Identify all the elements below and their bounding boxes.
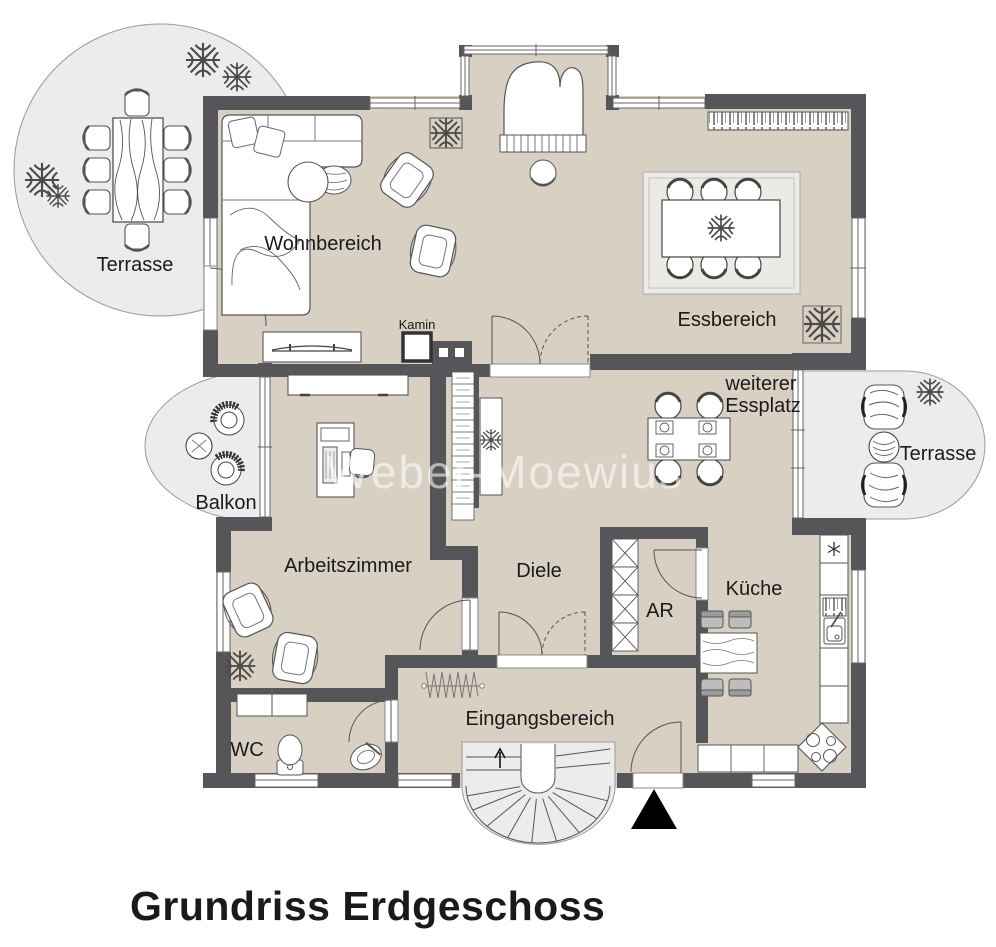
balcony-table [186,433,212,459]
drainboard [823,598,846,616]
dining-label: Essbereich [678,309,777,331]
terrace-left-label: Terrasse [97,254,174,276]
kitchen-counter-right [820,535,848,723]
kitchen-label: Küche [726,578,783,600]
terrace-right-table [869,432,899,462]
balcony-area: Balkon [145,370,265,522]
balcony-label: Balkon [195,492,256,514]
floorplan-page: Terrasse Balkon Terrasse [0,0,996,947]
entrance-triangle-icon [631,789,677,829]
extra-dining-label-2: Essplatz [725,395,801,417]
kitchen-counter-bottom [698,745,798,772]
plant-icon [430,118,462,149]
tv-sideboard [263,332,361,362]
lounge-chair [863,463,906,507]
study-label: Arbeitszimmer [284,555,412,577]
hallway-label: Diele [516,560,562,582]
terrace-table [113,118,163,222]
lounge-chair [863,385,906,429]
watermark: Weber-Moewius [326,446,683,498]
study-sideboard [288,375,408,395]
fireplace-label: Kamin [399,317,436,332]
living-label: Wohnbereich [264,233,381,255]
kitchen-table-group [700,611,757,696]
wc-label: WC [230,739,263,761]
wc-cabinet [237,694,307,716]
plant-icon [917,379,944,406]
extra-dining-label-1: weiterer [724,373,796,395]
terrace-right-area: Terrasse [800,371,985,519]
floorplan-drawing: Terrasse Balkon Terrasse [0,0,996,947]
terrace-right-label: Terrasse [900,443,977,465]
entrance-label: Eingangsbereich [466,708,615,730]
plant-icon [225,651,256,682]
toilet [277,735,303,775]
radiator [708,112,848,130]
plant-icon [708,215,735,242]
stair-bay-area [462,742,615,844]
storage-label: AR [646,600,674,622]
page-title: Grundriss Erdgeschoss [130,883,605,929]
